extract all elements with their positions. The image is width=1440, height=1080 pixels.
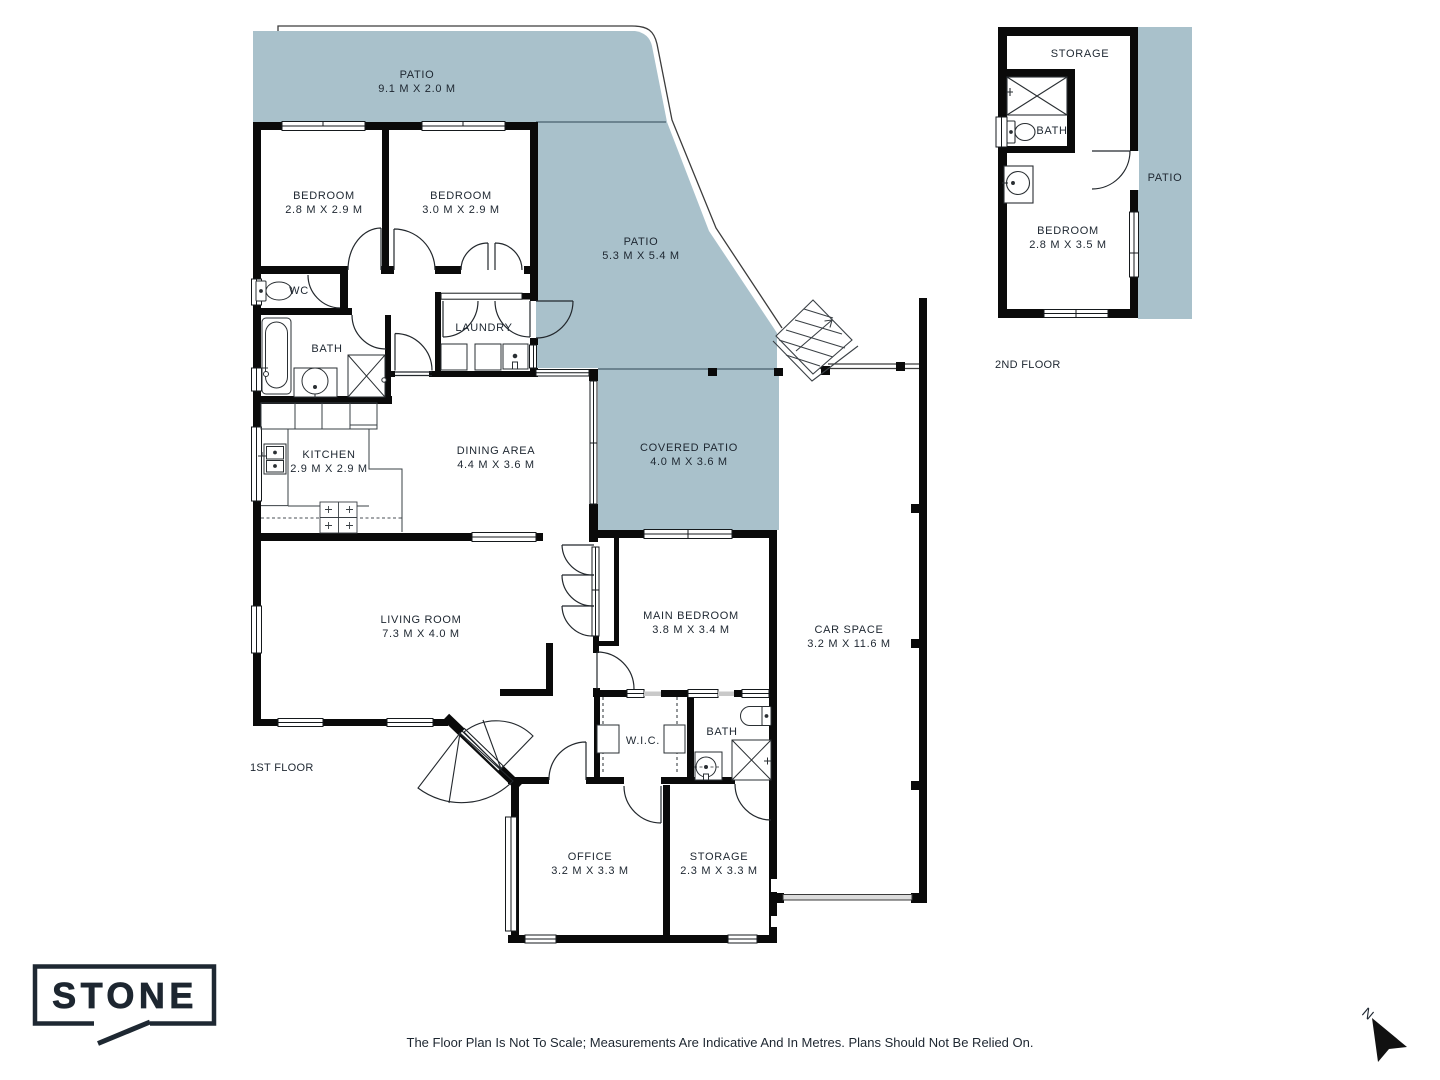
svg-text:BEDROOM: BEDROOM <box>1037 225 1099 237</box>
svg-text:OFFICE: OFFICE <box>568 851 613 863</box>
svg-text:BEDROOM: BEDROOM <box>430 190 492 202</box>
svg-text:3.2 M X 3.3 M: 3.2 M X 3.3 M <box>551 865 629 877</box>
svg-text:MAIN BEDROOM: MAIN BEDROOM <box>643 610 739 622</box>
svg-text:WC: WC <box>289 285 309 297</box>
svg-text:STORAGE: STORAGE <box>1051 48 1110 60</box>
svg-text:PATIO: PATIO <box>400 69 435 81</box>
svg-text:4.4 M X 3.6 M: 4.4 M X 3.6 M <box>457 459 535 471</box>
svg-text:COVERED PATIO: COVERED PATIO <box>640 442 738 454</box>
svg-text:The Floor Plan Is Not To Scale: The Floor Plan Is Not To Scale; Measurem… <box>407 1035 1034 1050</box>
svg-text:5.3 M X 5.4 M: 5.3 M X 5.4 M <box>602 250 680 262</box>
svg-text:BEDROOM: BEDROOM <box>293 190 355 202</box>
svg-text:9.1 M X 2.0 M: 9.1 M X 2.0 M <box>378 83 456 95</box>
svg-text:W.I.C.: W.I.C. <box>626 735 660 747</box>
svg-text:7.3 M X 4.0 M: 7.3 M X 4.0 M <box>382 628 460 640</box>
svg-text:BATH: BATH <box>1036 125 1067 137</box>
svg-text:CAR SPACE: CAR SPACE <box>814 624 883 636</box>
svg-text:BATH: BATH <box>311 343 342 355</box>
svg-text:STORAGE: STORAGE <box>690 851 749 863</box>
svg-text:2.9 M X 2.9 M: 2.9 M X 2.9 M <box>290 463 368 475</box>
svg-text:2ND FLOOR: 2ND FLOOR <box>995 359 1061 371</box>
svg-text:2.3 M X 3.3 M: 2.3 M X 3.3 M <box>680 865 758 877</box>
svg-text:2.8 M X 2.9 M: 2.8 M X 2.9 M <box>285 204 363 216</box>
svg-text:3.2 M X 11.6 M: 3.2 M X 11.6 M <box>807 638 891 650</box>
svg-text:KITCHEN: KITCHEN <box>302 449 355 461</box>
svg-text:DINING AREA: DINING AREA <box>457 445 536 457</box>
svg-text:1ST FLOOR: 1ST FLOOR <box>250 762 314 774</box>
svg-text:3.8 M X 3.4 M: 3.8 M X 3.4 M <box>652 624 730 636</box>
svg-text:LAUNDRY: LAUNDRY <box>455 322 512 334</box>
svg-text:PATIO: PATIO <box>624 236 659 248</box>
svg-text:PATIO: PATIO <box>1148 172 1183 184</box>
svg-text:BATH: BATH <box>706 726 737 738</box>
svg-text:3.0 M X 2.9 M: 3.0 M X 2.9 M <box>422 204 500 216</box>
svg-text:2.8 M X 3.5 M: 2.8 M X 3.5 M <box>1029 239 1107 251</box>
svg-text:LIVING ROOM: LIVING ROOM <box>380 614 461 626</box>
svg-text:STONE: STONE <box>52 975 198 1016</box>
svg-text:4.0 M X 3.6 M: 4.0 M X 3.6 M <box>650 456 728 468</box>
